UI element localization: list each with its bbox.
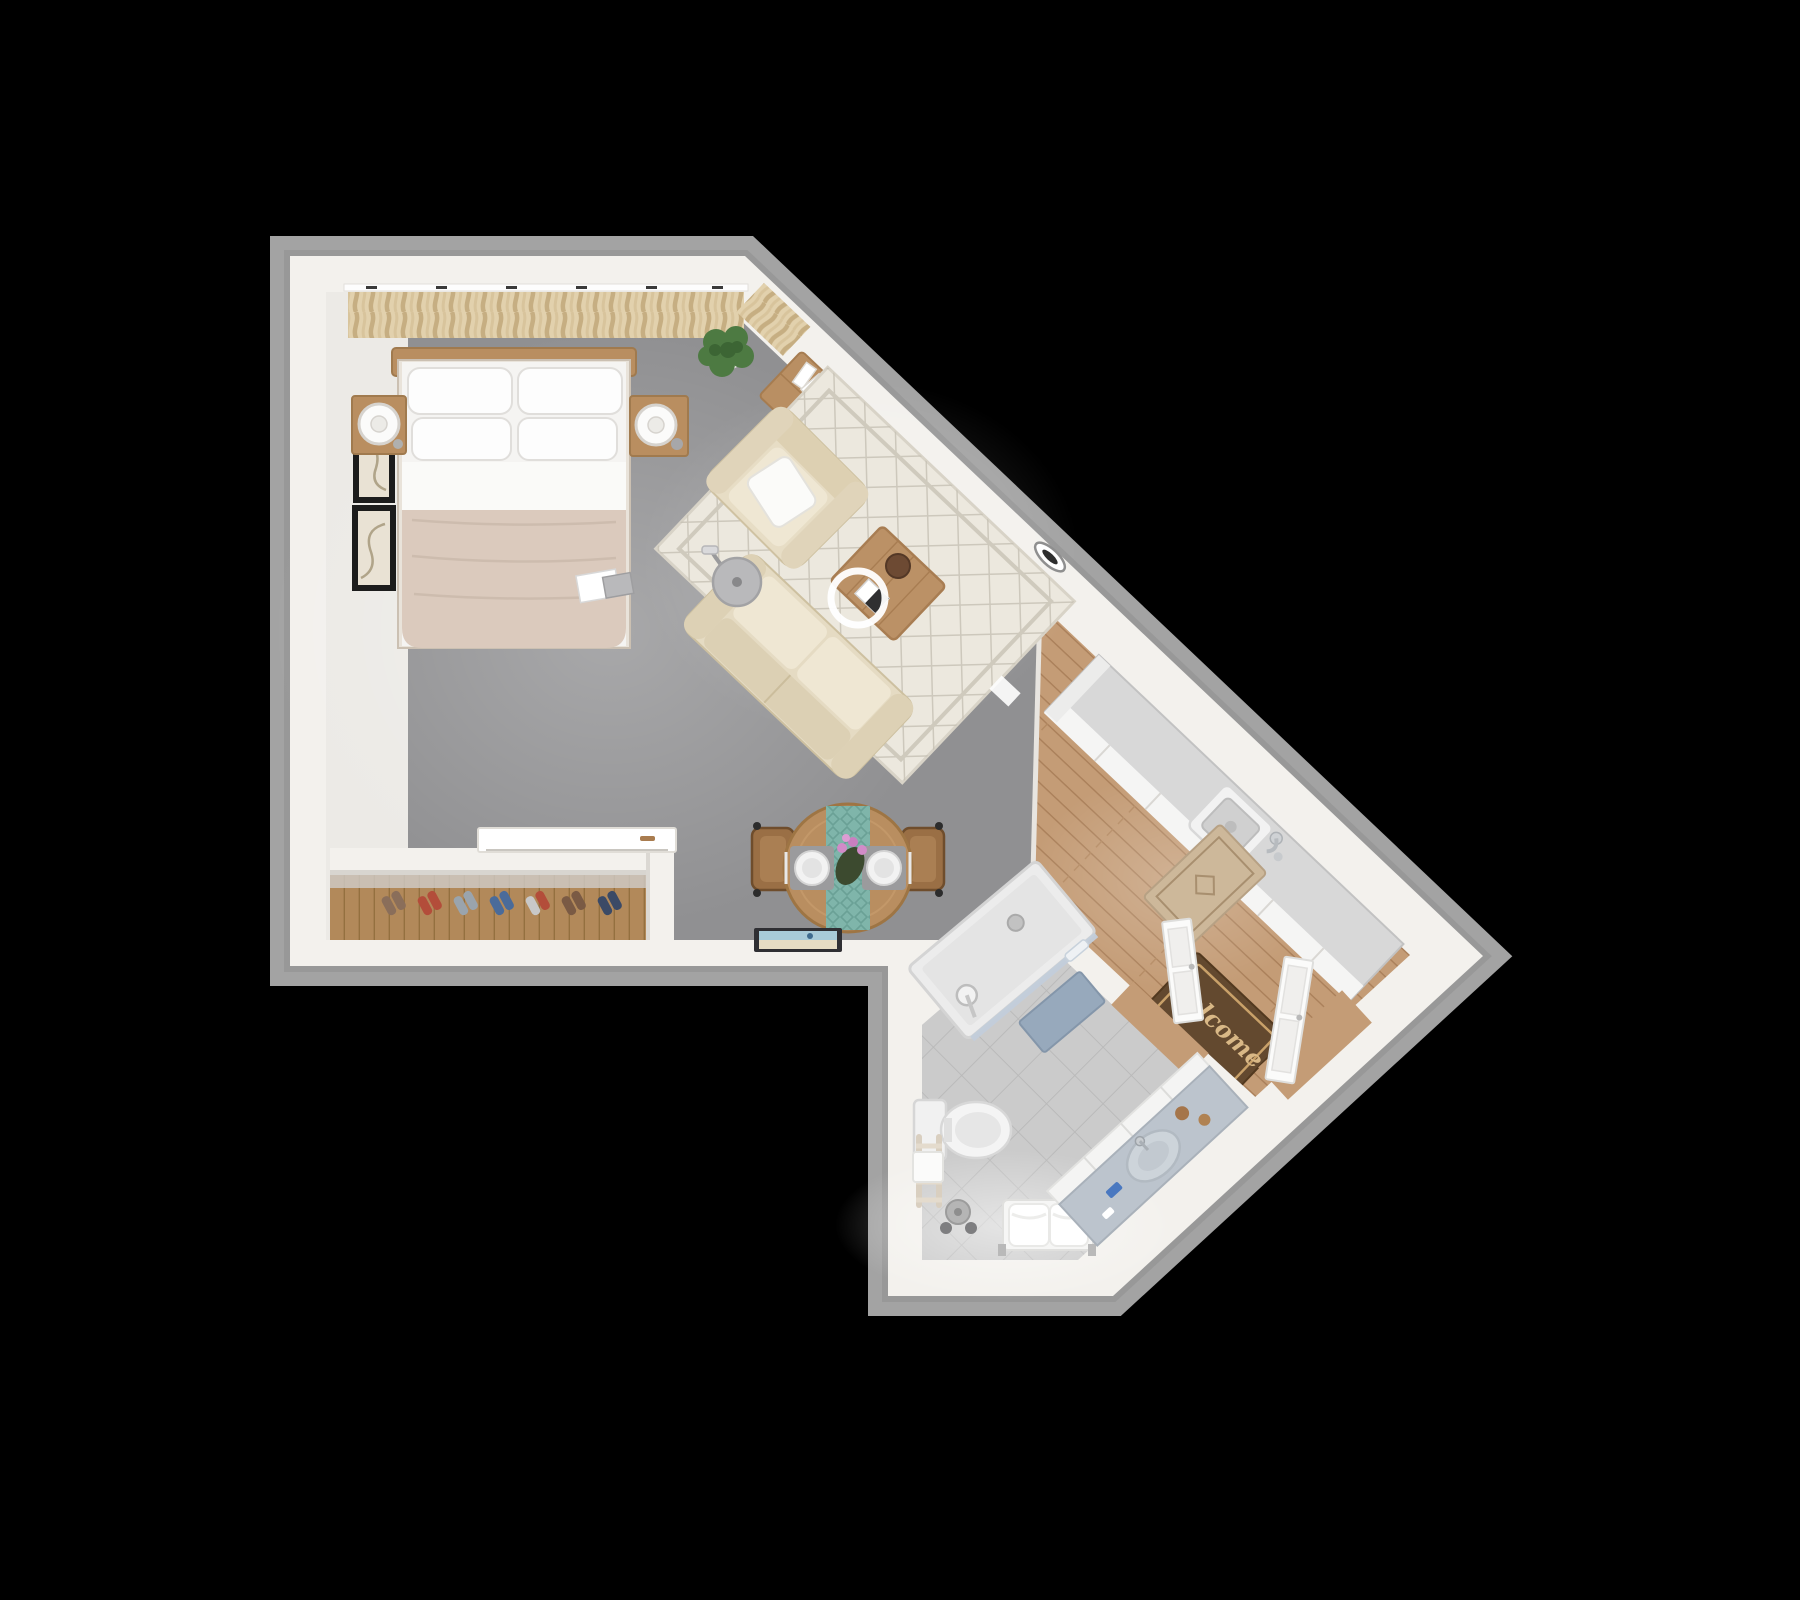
sheet-fold bbox=[402, 462, 626, 510]
wall-frame-bottom bbox=[355, 508, 393, 588]
nightstand-left bbox=[352, 396, 406, 454]
dresser-handle bbox=[640, 836, 655, 841]
floor-plan-canvas: Welcome bbox=[0, 0, 1800, 1600]
curtain-band bbox=[348, 292, 744, 338]
floor-picture bbox=[754, 928, 842, 952]
curtain-rod bbox=[344, 284, 748, 291]
lamp-base bbox=[702, 546, 718, 554]
closet-divider-shadow bbox=[330, 870, 674, 875]
round-tray bbox=[886, 554, 910, 578]
floor-plan-svg: Welcome bbox=[0, 0, 1800, 1600]
nightstand-right bbox=[630, 396, 688, 456]
ladder-towel bbox=[913, 1152, 943, 1182]
bench-towel-1 bbox=[1009, 1204, 1049, 1246]
double-bed bbox=[392, 348, 636, 648]
closet-east-wall bbox=[648, 848, 674, 940]
dresser bbox=[478, 828, 676, 852]
